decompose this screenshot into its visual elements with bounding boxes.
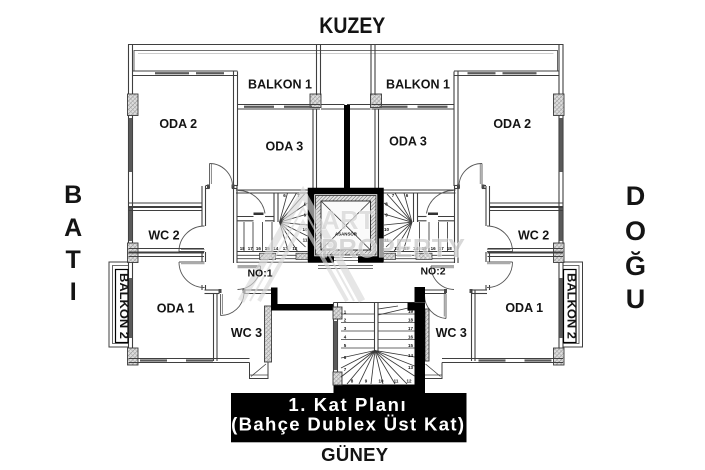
svg-text:17: 17: [248, 246, 254, 251]
svg-text:BALKON 2: BALKON 2: [117, 273, 131, 339]
svg-text:BALKON 1: BALKON 1: [248, 77, 312, 91]
svg-text:B: B: [64, 181, 82, 209]
svg-text:ODA 3: ODA 3: [389, 135, 427, 149]
svg-text:GÜNEY: GÜNEY: [321, 444, 389, 465]
svg-text:ODA 1: ODA 1: [157, 302, 195, 316]
svg-text:11: 11: [394, 379, 399, 384]
svg-text:ODA 2: ODA 2: [493, 117, 531, 131]
svg-text:ODA 2: ODA 2: [159, 117, 197, 131]
svg-text:15: 15: [408, 343, 414, 348]
svg-text:PROPERTY: PROPERTY: [321, 235, 465, 263]
svg-text:(Bahçe Dublex Üst Kat): (Bahçe Dublex Üst Kat): [231, 414, 465, 435]
svg-text:11: 11: [303, 238, 308, 243]
svg-text:D: D: [626, 181, 646, 211]
svg-text:KUZEY: KUZEY: [319, 13, 385, 38]
svg-text:16: 16: [256, 246, 262, 251]
svg-text:14: 14: [408, 353, 414, 358]
svg-text:13: 13: [408, 365, 414, 370]
svg-text:O: O: [625, 216, 646, 246]
svg-text:A: A: [64, 214, 82, 242]
svg-text:WC 2: WC 2: [518, 229, 549, 243]
svg-text:10: 10: [378, 379, 384, 384]
svg-text:BALKON 1: BALKON 1: [386, 77, 450, 91]
svg-text:12: 12: [406, 379, 412, 384]
svg-text:T: T: [66, 246, 81, 274]
svg-text:I: I: [70, 278, 77, 306]
svg-text:ODA 3: ODA 3: [266, 140, 304, 154]
svg-text:BALKON 2: BALKON 2: [564, 273, 578, 339]
svg-text:10: 10: [384, 227, 390, 232]
svg-text:16: 16: [408, 335, 414, 340]
svg-text:ODA 1: ODA 1: [505, 301, 543, 315]
svg-text:12: 12: [292, 246, 298, 251]
svg-text:Ğ: Ğ: [625, 250, 646, 281]
svg-text:U: U: [626, 284, 646, 314]
svg-text:ART: ART: [321, 207, 375, 235]
svg-text:1. Kat Planı: 1. Kat Planı: [288, 394, 407, 415]
svg-text:WC 3: WC 3: [436, 326, 467, 340]
svg-text:17: 17: [408, 326, 414, 331]
svg-text:18: 18: [408, 318, 414, 323]
svg-text:WC 3: WC 3: [231, 326, 262, 340]
svg-text:NO:1: NO:1: [247, 268, 272, 280]
svg-text:NO:2: NO:2: [420, 266, 445, 278]
svg-text:WC 2: WC 2: [148, 229, 179, 243]
svg-text:18: 18: [240, 246, 246, 251]
